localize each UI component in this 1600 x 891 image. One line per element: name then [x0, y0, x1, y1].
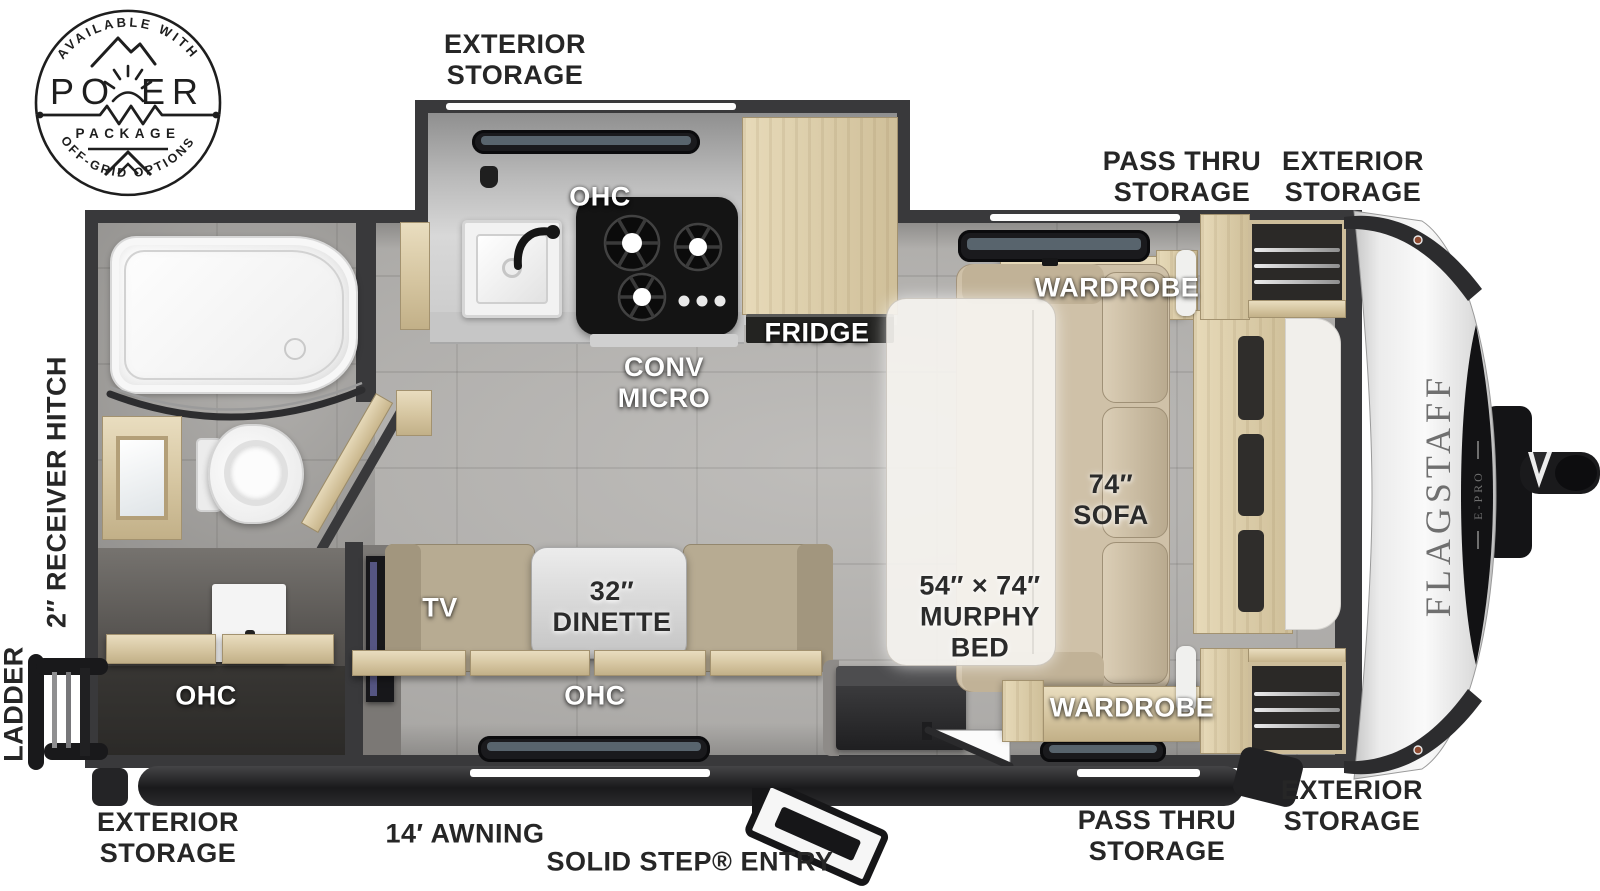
storage-rail	[1254, 724, 1340, 728]
label-wardrobe-bottom: WARDROBE	[1050, 693, 1215, 724]
wall-strip-top-front	[990, 214, 1180, 221]
marker-light	[1414, 746, 1422, 754]
wall-strip-slide-top	[446, 103, 736, 110]
brand-sub: E-PRO	[1471, 470, 1485, 520]
label-ohc-rear: OHC	[175, 681, 237, 712]
label-dinette: 32″DINETTE	[552, 576, 671, 638]
floorplan-canvas: AVAILABLE WITH OFF-GRID OPTIONS PO ER PA…	[0, 0, 1600, 891]
tub-drain	[284, 338, 306, 360]
dinette-divider-wall	[345, 542, 363, 755]
entry-window	[1040, 740, 1166, 762]
label-murphy-bed: 54″ × 74″MURPHYBED	[919, 571, 1040, 664]
stove-knob	[715, 296, 726, 307]
rear-ohc-shelf-right	[222, 634, 334, 664]
wall-strip-door	[470, 769, 710, 777]
entry-door	[922, 698, 1014, 770]
rear-ohc-shelf-left	[106, 634, 216, 664]
murphy-frame-slot	[1238, 434, 1264, 516]
brand-dash	[1477, 531, 1479, 549]
stove-knob	[697, 296, 708, 307]
mountains-icon	[92, 38, 155, 66]
dinette-ohc-strip	[710, 650, 822, 676]
ladder-icon	[22, 648, 114, 776]
svg-text:AVAILABLE WITH: AVAILABLE WITH	[54, 15, 203, 62]
toilet-seat	[224, 440, 288, 506]
storage-rail	[1254, 708, 1340, 712]
burner-icon	[605, 216, 659, 270]
wall-top-rear	[85, 210, 430, 223]
label-wardrobe-top: WARDROBE	[1035, 273, 1200, 304]
label-pass-thru-storage-top: PASS THRUSTORAGE	[1103, 146, 1262, 208]
badge-arc-top-text: AVAILABLE WITH	[54, 15, 203, 62]
label-exterior-storage-top: EXTERIORSTORAGE	[444, 29, 586, 91]
front-cap: FLAGSTAFF E-PRO	[1330, 195, 1600, 795]
stove-drawer	[590, 334, 738, 347]
brand-name: FLAGSTAFF	[1418, 373, 1458, 617]
dinette-ohc-strip	[594, 650, 706, 676]
awning-end-cap	[92, 768, 128, 806]
badge-dot-right	[213, 112, 220, 119]
label-solid-step-entry: SOLID STEP® ENTRY	[547, 847, 834, 878]
stove	[576, 197, 738, 335]
brand-dash	[1477, 441, 1479, 459]
storage-rail	[1254, 264, 1340, 268]
dinette-ohc-strip	[470, 650, 590, 676]
murphy-frame-slot	[1238, 336, 1264, 420]
label-ohc-dinette: OHC	[564, 681, 626, 712]
tub-wall	[356, 210, 376, 402]
storage-rail	[1254, 248, 1340, 252]
marker-light	[1414, 236, 1422, 244]
badge-word-left: PO	[50, 71, 116, 112]
fridge-cabinet	[742, 117, 898, 315]
furnace-cabinet-top	[836, 666, 966, 686]
bathtub-inner	[124, 250, 344, 380]
murphy-frame-slot	[1238, 530, 1264, 612]
faucet-icon	[500, 222, 564, 278]
label-exterior-storage-front-top: EXTERIORSTORAGE	[1282, 146, 1424, 208]
burner-icon	[619, 274, 665, 320]
vanity-mirror	[116, 436, 168, 520]
label-ohc-kitchen: OHC	[569, 182, 631, 213]
label-pass-thru-storage-bottom: PASS THRUSTORAGE	[1078, 805, 1237, 867]
label-awning: 14′ AWNING	[386, 819, 545, 850]
soap-dispenser	[480, 166, 498, 188]
window-latch	[1042, 258, 1058, 266]
door-hinge-cabinet	[396, 390, 432, 436]
pass-thru-top-panel	[1200, 214, 1250, 320]
label-exterior-storage-rear-bottom: EXTERIORSTORAGE	[97, 807, 239, 869]
kitchen-window	[472, 130, 700, 154]
storage-rail	[1254, 280, 1340, 284]
label-conv-micro: CONVMICRO	[618, 352, 711, 414]
wall-strip-front-bottom	[1077, 769, 1200, 777]
storage-rail	[1254, 692, 1340, 696]
dinette-ohc-strip	[352, 650, 466, 676]
label-receiver-hitch: 2″ RECEIVER HITCH	[42, 356, 73, 628]
sofa-back-cushion	[1102, 542, 1168, 684]
wardrobe-bottom-end	[1002, 680, 1044, 742]
label-sofa: 74″SOFA	[1073, 469, 1149, 531]
stove-knob	[679, 296, 690, 307]
power-package-badge: AVAILABLE WITH OFF-GRID OPTIONS PO ER PA…	[28, 2, 228, 202]
label-ladder: LADDER	[0, 646, 30, 762]
kitchen-end-panel	[400, 222, 430, 330]
label-exterior-storage-front-bottom: EXTERIORSTORAGE	[1281, 775, 1423, 837]
badge-subtitle: PACKAGE	[75, 126, 180, 141]
badge-word-right: ER	[141, 71, 205, 112]
burner-icon	[675, 224, 721, 270]
label-tv: TV	[422, 593, 458, 624]
label-fridge: FRIDGE	[764, 318, 869, 349]
badge-dot-left	[37, 112, 44, 119]
dinette-window	[478, 736, 710, 762]
